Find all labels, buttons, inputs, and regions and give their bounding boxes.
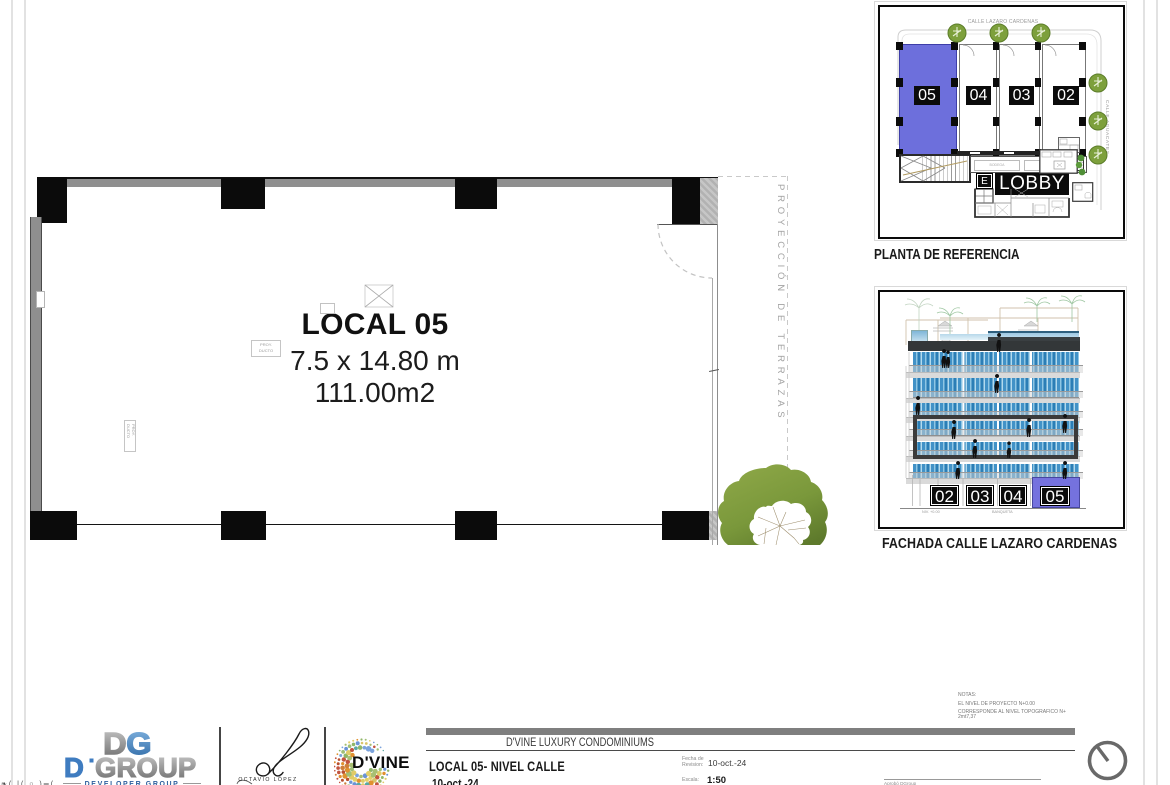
svg-text:D: D bbox=[64, 754, 84, 782]
svg-text:GROUP: GROUP bbox=[95, 754, 196, 782]
